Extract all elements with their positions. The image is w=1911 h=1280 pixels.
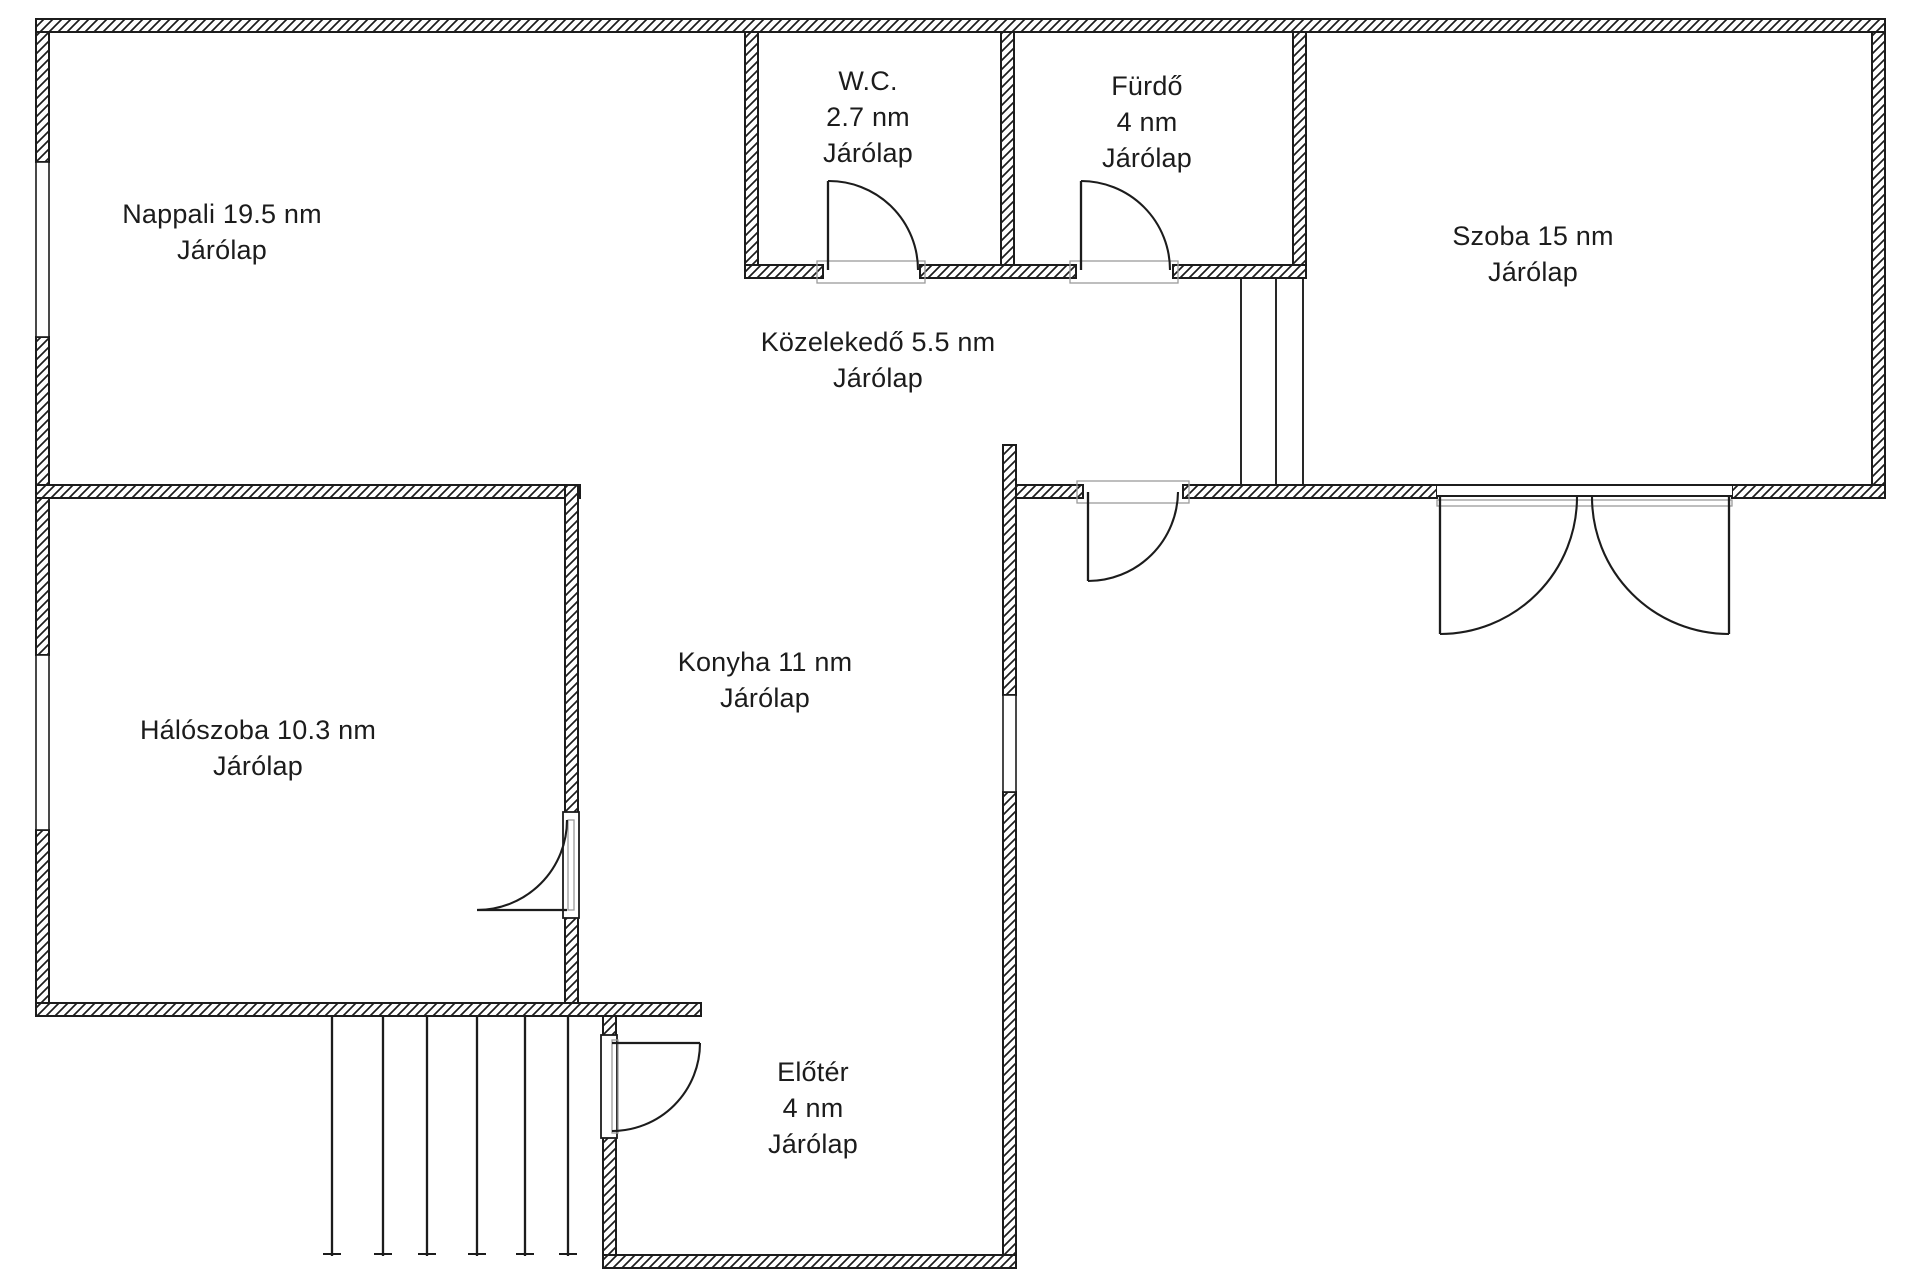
wc-door-swing-arc xyxy=(828,181,918,270)
top-wall xyxy=(36,19,1885,32)
konyha-right-a xyxy=(1003,445,1016,695)
room-label-nappali: Nappali 19.5 nmJárólap xyxy=(122,196,322,268)
eloter-door-swing-arc xyxy=(612,1043,700,1131)
room-label-line: Szoba 15 nm xyxy=(1452,218,1613,254)
room-label-line: Járólap xyxy=(768,1126,858,1162)
room-label-line: Járólap xyxy=(122,232,322,268)
furdo-door-swing-arc xyxy=(1081,181,1170,270)
room-label-line: Járólap xyxy=(140,748,376,784)
room-label-szoba: Szoba 15 nmJárólap xyxy=(1452,218,1613,290)
room-label-line: Járólap xyxy=(1452,254,1613,290)
right-wall xyxy=(1872,32,1885,498)
szoba-left-wall xyxy=(1293,32,1306,277)
left-wall-c xyxy=(36,830,49,1016)
halo-bottom-wall xyxy=(36,1003,701,1016)
room-label-wc: W.C.2.7 nmJárólap xyxy=(823,63,913,171)
room-label-eloter: Előtér4 nmJárólap xyxy=(768,1054,858,1162)
room-label-line: W.C. xyxy=(823,63,913,99)
kozelekedo-door-swing-arc xyxy=(1088,492,1178,581)
corridor-bottom-c xyxy=(1732,485,1885,498)
wc-furdo-divider xyxy=(1001,32,1014,265)
room-label-kozelekedo: Közelekedő 5.5 nmJárólap xyxy=(761,324,996,396)
szoba-double-door-left-swing-arc xyxy=(1440,497,1577,634)
eloter-bottom-wall xyxy=(603,1255,1016,1268)
halo-divider-a xyxy=(565,485,578,815)
wc-left-wall xyxy=(745,32,758,278)
double-door-threshold xyxy=(1437,500,1732,506)
konyha-right-b xyxy=(1003,792,1016,1255)
room-label-line: 4 nm xyxy=(768,1090,858,1126)
room-label-line: Közelekedő 5.5 nm xyxy=(761,324,996,360)
floor-plan-drawing xyxy=(0,0,1911,1280)
eloter-left-b xyxy=(603,1135,616,1255)
room-label-konyha: Konyha 11 nmJárólap xyxy=(678,644,853,716)
halo-divider-b xyxy=(565,915,578,1016)
szoba-double-door-right-swing-arc xyxy=(1592,497,1729,634)
furdo-door-threshold xyxy=(1070,261,1178,283)
room-label-haloszoba: Hálószoba 10.3 nmJárólap xyxy=(140,712,376,784)
wcfurdo-bottom-a xyxy=(745,265,823,278)
room-label-line: 4 nm xyxy=(1102,104,1192,140)
room-label-furdo: Fürdő4 nmJárólap xyxy=(1102,68,1192,176)
corridor-bottom-b xyxy=(1183,485,1437,498)
left-wall-a xyxy=(36,32,49,162)
haloszoba-door-swing-arc xyxy=(477,820,567,910)
room-label-line: 2.7 nm xyxy=(823,99,913,135)
floor-plan: Nappali 19.5 nmJárólapW.C.2.7 nmJárólapF… xyxy=(0,0,1911,1280)
room-label-line: Járólap xyxy=(1102,140,1192,176)
wc-door-threshold xyxy=(817,261,925,283)
haloszoba-window xyxy=(36,655,49,830)
nappali-bottom-wall xyxy=(36,485,580,498)
eloter-door-jamb xyxy=(601,1035,617,1138)
room-label-line: Hálószoba 10.3 nm xyxy=(140,712,376,748)
wcfurdo-bottom-c xyxy=(1173,265,1306,278)
room-label-line: Járólap xyxy=(823,135,913,171)
wcfurdo-bottom-b xyxy=(920,265,1076,278)
kozelekedo-door-threshold xyxy=(1077,481,1189,503)
room-label-line: Előtér xyxy=(768,1054,858,1090)
nappali-window xyxy=(36,162,49,337)
room-label-line: Fürdő xyxy=(1102,68,1192,104)
room-label-line: Járólap xyxy=(678,680,853,716)
haloszoba-door-jamb xyxy=(563,812,579,918)
room-label-line: Járólap xyxy=(761,360,996,396)
room-label-line: Nappali 19.5 nm xyxy=(122,196,322,232)
room-label-line: Konyha 11 nm xyxy=(678,644,853,680)
konyha-window xyxy=(1003,695,1016,792)
